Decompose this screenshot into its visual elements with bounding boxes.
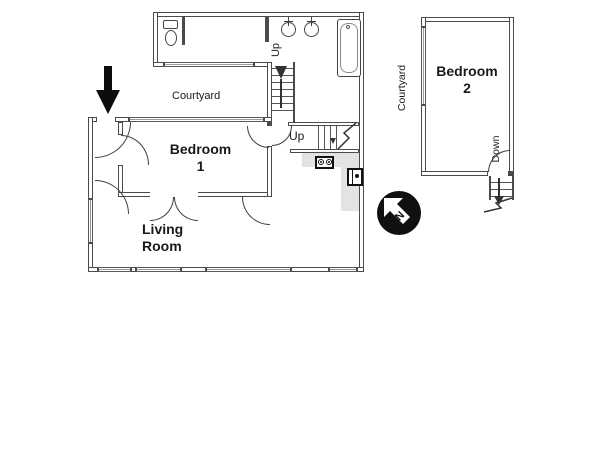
toilet-bowl [165, 30, 177, 46]
bedroom2-label: Bedroom 2 [424, 63, 510, 97]
staircase-main-arrow-shaft [280, 79, 282, 108]
window-bottom-2 [135, 267, 182, 272]
wall-bedroom2-bottom [421, 171, 488, 176]
bedroom1-label-line2: 1 [138, 158, 263, 175]
appliance-knob [355, 174, 359, 178]
door-hall [95, 180, 129, 214]
floor-plan: Courtyard Bedroom 1 Living Room Up Up Co… [0, 0, 600, 450]
staircase-bedroom2-break-line [480, 194, 514, 214]
living-room-label-line2: Room [142, 238, 183, 255]
door-stairs [272, 126, 292, 146]
bathtub-inner [340, 23, 358, 73]
wall-main-left [88, 117, 93, 272]
door-bedroom1 [121, 135, 149, 165]
window-bath [163, 62, 255, 67]
window-bottom-3 [205, 267, 292, 272]
appliance-divider [352, 170, 353, 184]
bedroom1-label: Bedroom 1 [138, 141, 263, 175]
courtyard2-label: Courtyard [396, 61, 410, 115]
bathtub-drain [346, 25, 350, 29]
stove-burner-right [326, 159, 332, 165]
door-double-left [150, 197, 174, 221]
living-room-label: Living Room [142, 221, 183, 255]
window-left [88, 198, 93, 244]
wall-bedroom1-right [267, 146, 272, 197]
wall-bath-left [153, 12, 158, 67]
courtyard-label: Courtyard [172, 90, 220, 102]
staircase-main-arrow-head [275, 66, 287, 79]
window-courtyard [128, 117, 265, 122]
bedroom2-label-line2: 2 [424, 80, 510, 97]
stove-burner-left [318, 159, 324, 165]
toilet-tank [163, 20, 178, 29]
window-bottom-4 [328, 267, 358, 272]
entrance-arrow-head [96, 90, 120, 114]
bedroom2-label-line1: Bedroom [424, 63, 510, 80]
sink-left-faucet-v [288, 17, 289, 26]
wall-bedroom2-top [421, 17, 514, 22]
staircase-passage-break-line [336, 121, 360, 151]
door-double-right [174, 197, 198, 221]
north-arrow-icon: N [377, 191, 421, 235]
bedroom1-label-line1: Bedroom [138, 141, 263, 158]
window-bedroom2 [421, 26, 426, 106]
door-kitchen [242, 197, 270, 225]
wall-bath-stub [265, 17, 269, 42]
living-room-label-line1: Living [142, 221, 183, 238]
doorway-double [150, 192, 198, 197]
sink-right-faucet-v [311, 17, 312, 26]
north-compass: N [377, 191, 421, 235]
stairs-up-label: Up [270, 34, 284, 66]
wall-stair-right [293, 62, 295, 122]
entrance-arrow-shaft [104, 66, 112, 92]
window-bottom-1 [97, 267, 132, 272]
wall-toilet-partition [182, 17, 185, 45]
